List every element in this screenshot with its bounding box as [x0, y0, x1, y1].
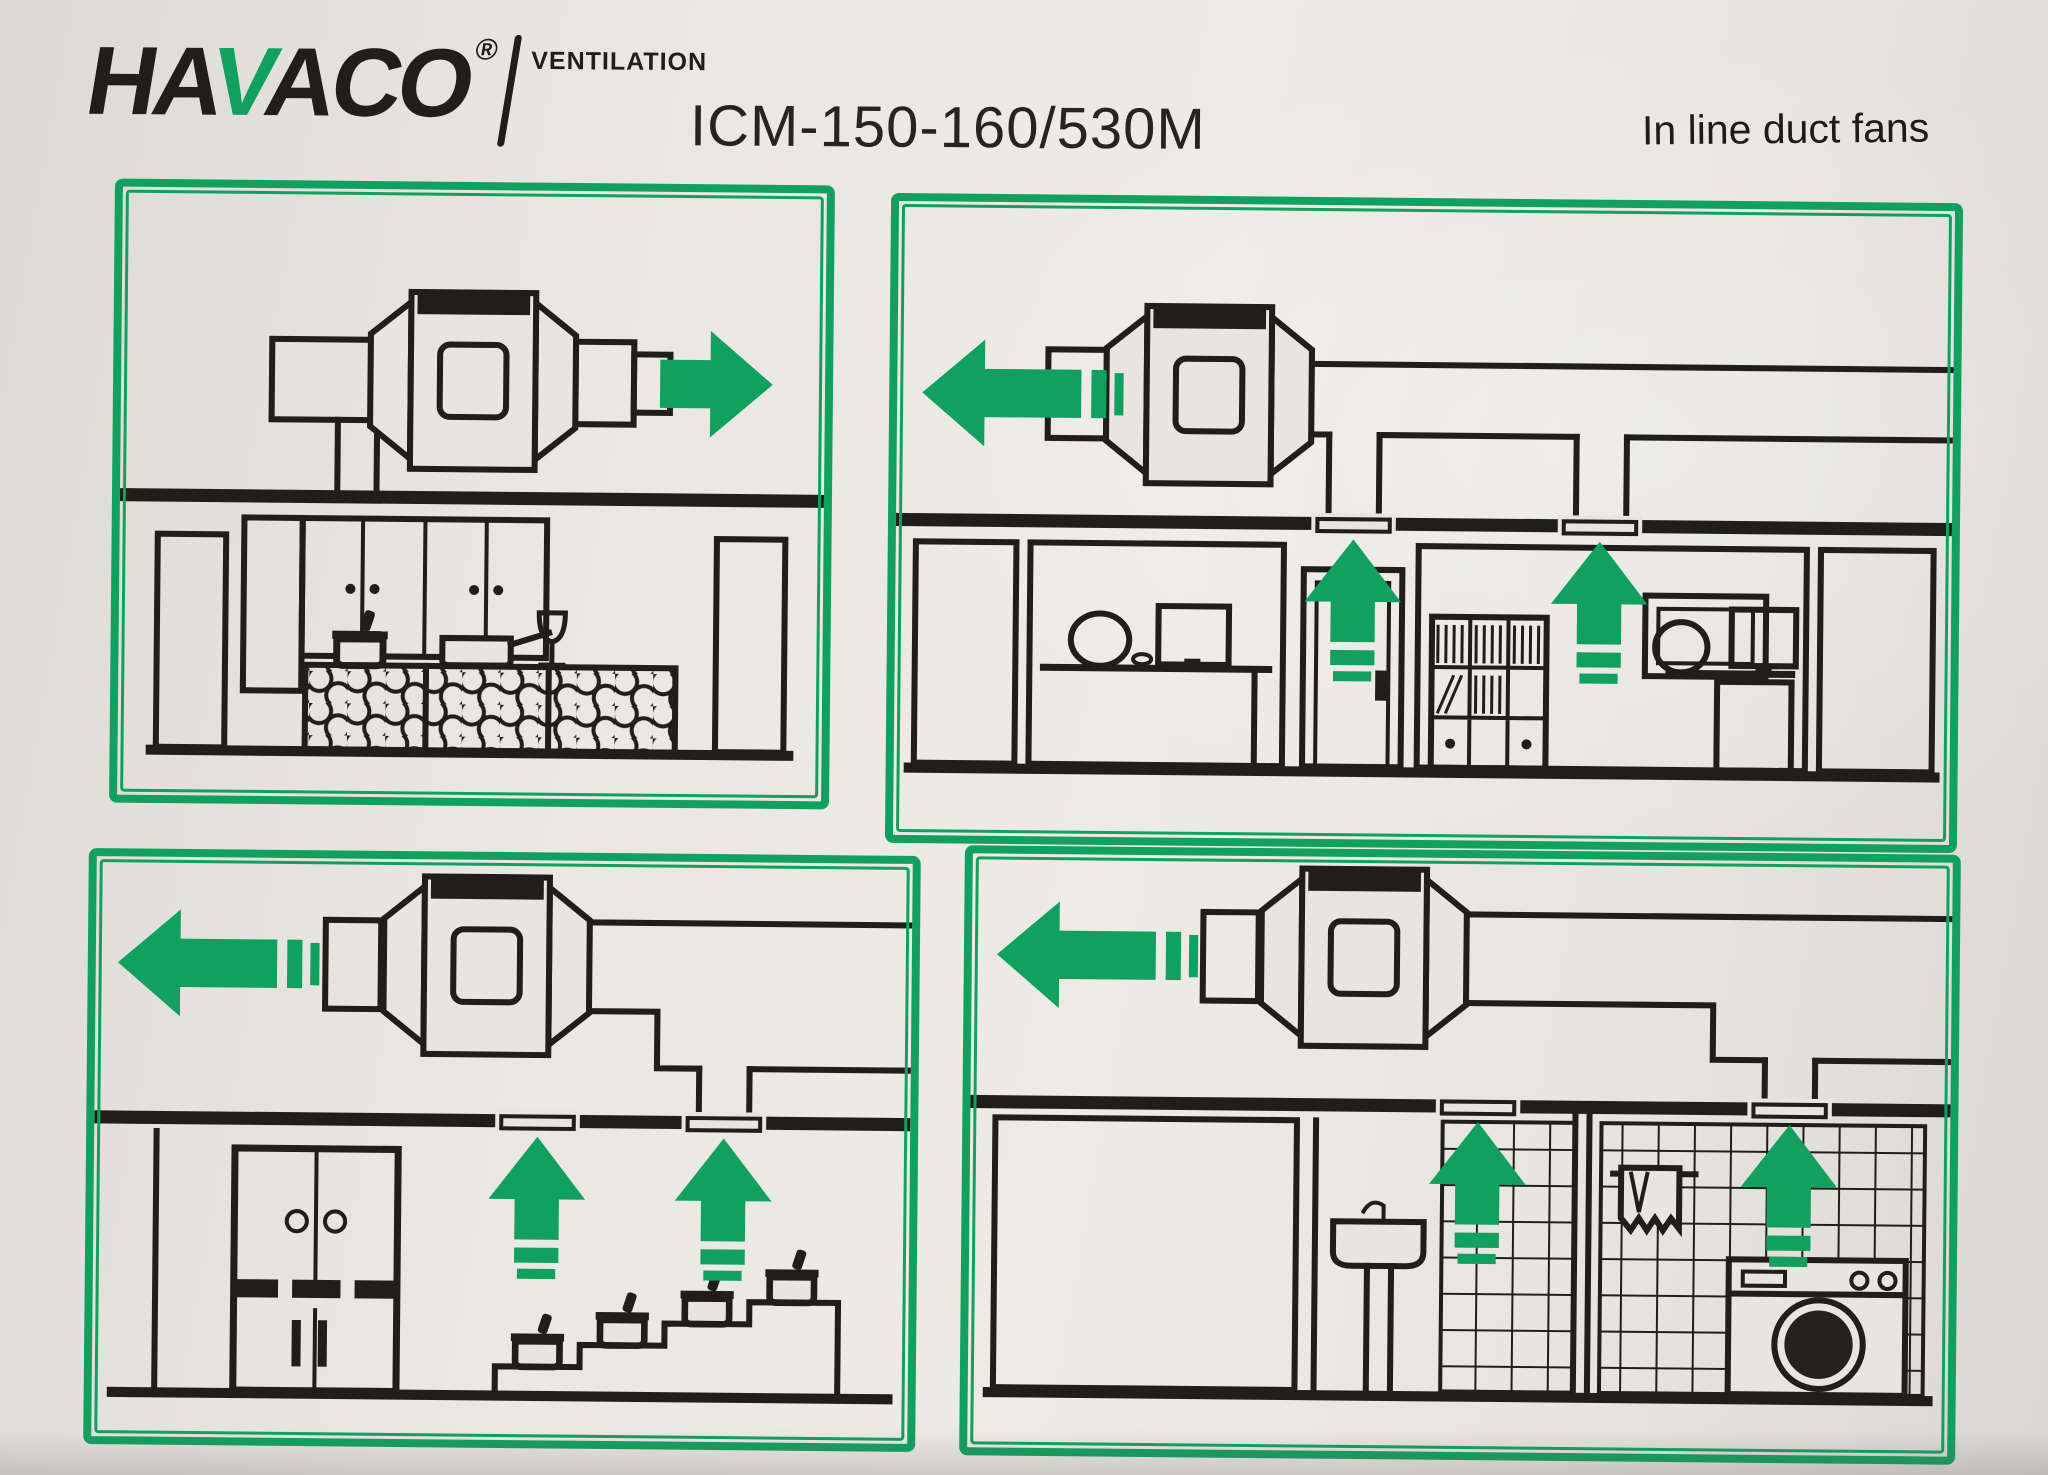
cooking-pot-icon	[332, 609, 388, 666]
bathroom	[1313, 1120, 1575, 1392]
ceiling-vent	[1436, 1095, 1521, 1117]
extract-arrow-up-icon	[1550, 541, 1648, 684]
serving-pot-icon	[765, 1248, 819, 1303]
right-wall	[715, 539, 785, 753]
brand-wordmark: HAVACO®	[80, 30, 501, 135]
counter-icon	[305, 665, 676, 753]
computer-monitor-icon	[1158, 606, 1229, 665]
hall-room	[993, 1117, 1297, 1390]
inline-duct-fan-icon	[1261, 868, 1468, 1047]
extract-arrow-up-icon	[674, 1138, 772, 1281]
cold-cabinet-icon	[233, 1148, 399, 1392]
extract-arrow-up-icon	[488, 1136, 586, 1279]
inline-duct-fan-icon	[383, 876, 590, 1055]
desk-icon	[1654, 609, 1796, 771]
washbasin-icon	[1332, 1202, 1424, 1391]
partition-wall	[1573, 1113, 1590, 1393]
left-wall	[156, 534, 226, 748]
tall-cabinet-icon	[243, 517, 303, 690]
serving-pot-icon	[595, 1291, 649, 1346]
corridor-wall	[914, 541, 1017, 763]
panel-kitchen-exhaust	[109, 179, 835, 810]
ceiling-vent	[1311, 513, 1396, 535]
model-number: ICM-150-160/530M	[690, 92, 1206, 163]
panel-offices-exhaust	[885, 193, 1963, 853]
ceiling-slab	[896, 513, 1952, 536]
inline-duct-fan-icon	[1106, 306, 1313, 485]
brand-divider	[497, 35, 523, 147]
panel-catering-exhaust	[83, 848, 921, 1452]
panel-bathroom-laundry-exhaust	[959, 845, 1961, 1465]
ceiling-vent	[1558, 515, 1643, 537]
airflow-arrow-right-icon	[660, 330, 774, 438]
brand-division-label: VENTILATION	[531, 47, 707, 77]
product-box-photo: HAVACO® VENTILATION ICM-150-160/530M In …	[0, 0, 2048, 1475]
left-wall	[154, 1131, 156, 1389]
ceiling-slab	[120, 488, 824, 508]
product-tagline: In line duct fans	[1642, 104, 1930, 154]
office-room-left	[1028, 542, 1284, 766]
registered-mark-icon: ®	[473, 34, 501, 67]
airflow-arrow-left-icon	[997, 901, 1199, 1010]
mouse-icon	[1133, 654, 1151, 664]
catering-diagram	[91, 856, 913, 1444]
inline-duct-fan-icon	[370, 292, 577, 471]
bathroom-laundry-diagram	[967, 853, 1953, 1456]
corridor-wall	[1819, 550, 1934, 772]
washing-machine-icon	[1728, 1259, 1906, 1396]
kitchen-diagram	[117, 187, 827, 802]
office-chair-icon	[1071, 613, 1130, 666]
ceiling-vent	[681, 1112, 766, 1134]
ceiling-vent	[1747, 1098, 1832, 1120]
offices-diagram	[893, 201, 1955, 845]
saucepan-icon	[442, 632, 549, 666]
ceiling-vent	[495, 1110, 580, 1132]
brand-logo: HAVACO® VENTILATION	[88, 30, 708, 148]
airflow-arrow-left-icon	[922, 339, 1124, 448]
floor	[107, 1387, 893, 1405]
airflow-arrow-left-icon	[117, 909, 319, 1018]
bathroom-wall	[1313, 1120, 1316, 1390]
bookshelf-icon	[1431, 617, 1547, 769]
serving-pot-icon	[511, 1313, 565, 1368]
kitchen-room	[146, 517, 796, 761]
